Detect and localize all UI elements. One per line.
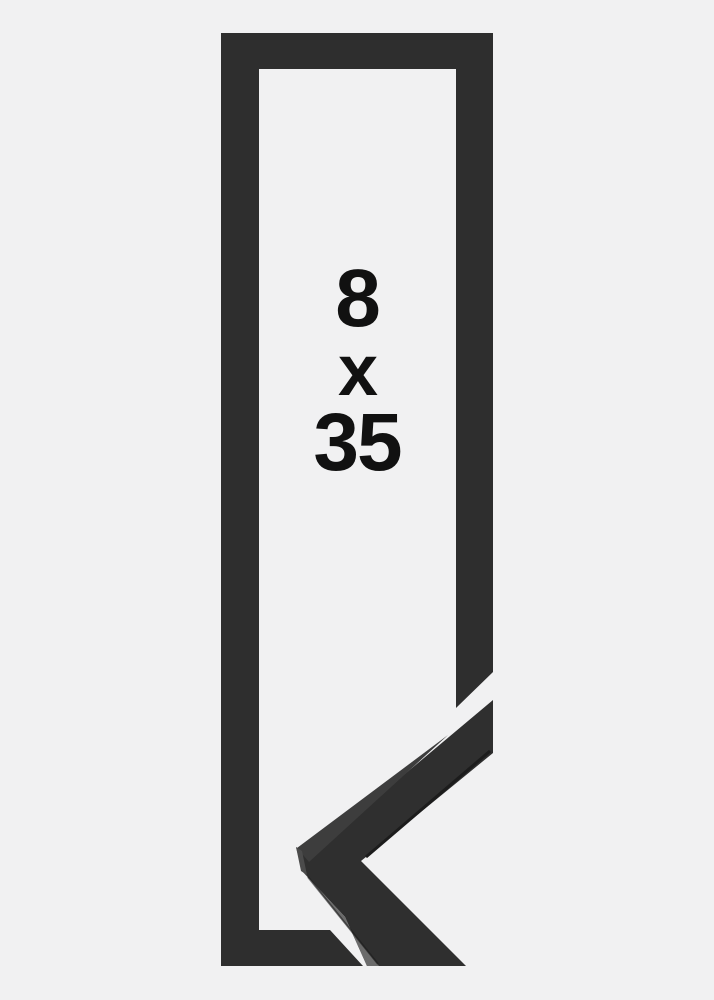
size-height-value: 35 xyxy=(0,407,714,479)
product-image: 8 x 35 xyxy=(0,0,714,1000)
frame-top-bar xyxy=(221,33,493,69)
frame-left-bar xyxy=(221,33,259,966)
frame-illustration xyxy=(0,0,714,1000)
size-label: 8 x 35 xyxy=(0,263,714,479)
frame-bottom-bar xyxy=(221,930,363,966)
size-width-value: 8 xyxy=(0,263,714,335)
